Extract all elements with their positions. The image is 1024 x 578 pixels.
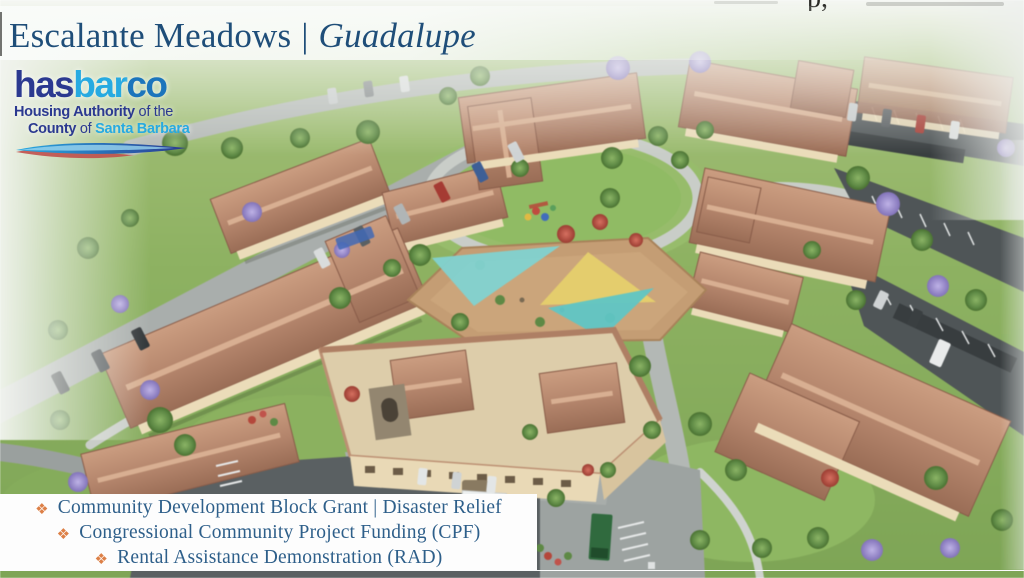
hasbarco-logo: hasbarco Housing Authority of the County… bbox=[14, 66, 214, 161]
logo-wordmark: hasbarco bbox=[14, 66, 214, 103]
funding-item-label: Congressional Community Project Funding … bbox=[79, 522, 480, 544]
funding-item-label: Rental Assistance Demonstration (RAD) bbox=[117, 547, 442, 569]
title-project: Escalante Meadows bbox=[9, 16, 291, 55]
stone-tower bbox=[369, 384, 412, 441]
logo-word-has: has bbox=[14, 64, 73, 105]
left-edge-artifact bbox=[0, 12, 2, 56]
page-title: Escalante Meadows|Guadalupe bbox=[9, 16, 476, 56]
title-separator: | bbox=[301, 16, 308, 55]
diamond-bullet-icon: ❖ bbox=[57, 525, 71, 543]
funding-item: ❖ Community Development Block Grant | Di… bbox=[0, 497, 537, 519]
slide-root: p, Escalante Meadows|Guadalupe hasbarco … bbox=[0, 0, 1024, 578]
diamond-bullet-icon: ❖ bbox=[95, 550, 109, 568]
cropped-text-smudge bbox=[714, 1, 778, 4]
funding-item-label: Community Development Block Grant | Disa… bbox=[58, 497, 502, 519]
logo-tagline-line1: Housing Authority of the bbox=[14, 105, 214, 120]
diamond-bullet-icon: ❖ bbox=[35, 500, 49, 518]
truck bbox=[588, 513, 612, 560]
bottom-strip bbox=[0, 570, 1024, 578]
logo-tagline-line2: County of Santa Barbara bbox=[14, 122, 214, 137]
funding-item: ❖ Congressional Community Project Fundin… bbox=[0, 522, 537, 544]
logo-swoosh-icon bbox=[14, 139, 190, 161]
logo-word-co: co bbox=[126, 64, 166, 105]
funding-list: ❖ Community Development Block Grant | Di… bbox=[0, 494, 537, 571]
title-bar: Escalante Meadows|Guadalupe bbox=[0, 6, 1024, 60]
funding-item: ❖ Rental Assistance Demonstration (RAD) bbox=[0, 547, 537, 569]
logo-word-bar: bar bbox=[73, 64, 126, 105]
title-location: Guadalupe bbox=[319, 16, 476, 55]
